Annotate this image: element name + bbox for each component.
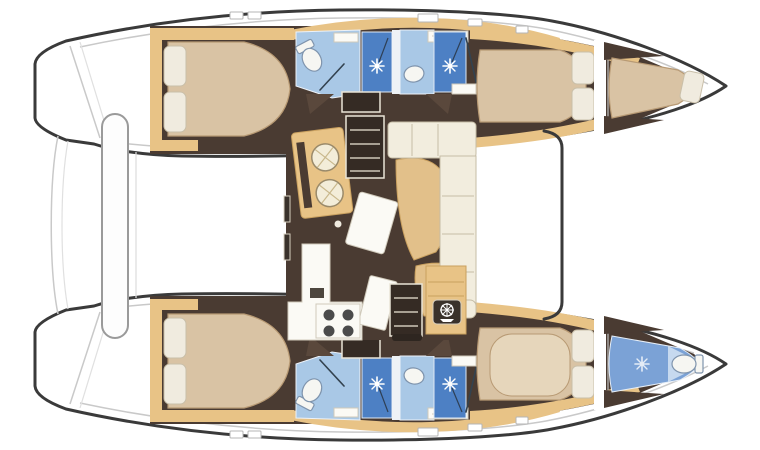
pillow [164, 318, 186, 358]
vanity-counter [452, 84, 476, 94]
starboard-forward-cabin [477, 328, 594, 400]
shower-spray-icon [443, 59, 457, 73]
deck-hatch [230, 431, 243, 438]
deck-hatch [248, 12, 261, 19]
stair-handrail [392, 334, 422, 341]
helm-wheel-icon [440, 303, 454, 322]
aft-cabin-window-band [198, 140, 288, 151]
pillow [164, 92, 186, 132]
deck-hatch [230, 12, 243, 19]
aft-cabin-trim-top [162, 28, 294, 40]
sliding-door-handle [284, 234, 290, 260]
port-forward-head [400, 30, 477, 94]
shower-spray-icon [443, 377, 457, 391]
companionway-landing [342, 338, 380, 358]
deck-hatch [468, 19, 482, 26]
bed [477, 50, 586, 122]
sliding-door-handle [284, 196, 290, 222]
shower-spray-icon [370, 59, 384, 73]
vanity-counter [334, 408, 358, 417]
deck-hatch [418, 428, 438, 436]
stairs-icon [346, 116, 384, 178]
aft-cabin-window-band [198, 299, 288, 310]
pillow [572, 366, 594, 398]
vanity-counter [452, 356, 476, 366]
catamaran-floorplan [0, 0, 760, 450]
shower-spray-icon [370, 377, 384, 391]
port-forward-cabin [477, 50, 594, 122]
shower-spray-icon [635, 357, 649, 371]
aft-cabin-trim-inboard [150, 299, 198, 310]
port-aft-cabin [164, 42, 290, 136]
deck-hatch [516, 26, 528, 33]
aft-cabin-trim-inboard [150, 140, 198, 151]
starboard-aft-cabin [164, 314, 290, 408]
table-leg [335, 221, 342, 228]
deck-hatch [516, 417, 528, 424]
aft-cabin-trim-left [150, 300, 162, 422]
four-burner-stove [316, 304, 360, 338]
starboard-forward-head [400, 356, 477, 420]
starboard-companionway-steps [390, 284, 422, 341]
stairs-icon [390, 284, 422, 336]
aft-cabin-trim-bottom [162, 410, 294, 422]
aft-cabin-trim-left [150, 28, 162, 150]
companionway-landing [342, 92, 380, 112]
stove-top [316, 304, 360, 338]
stove-burner-icon [343, 326, 354, 337]
pillow [164, 46, 186, 86]
toilet-icon [672, 355, 703, 373]
port-aft-head [295, 30, 392, 98]
starboard-aft-head [295, 352, 392, 420]
deck-hatch [248, 431, 261, 438]
deck-hatch [418, 14, 438, 22]
bed-cushion [490, 334, 570, 396]
pillow [164, 364, 186, 404]
stove-burner-icon [324, 326, 335, 337]
pillow [572, 52, 594, 84]
deck-hatch [468, 424, 482, 431]
pillow [572, 88, 594, 120]
port-companionway-steps [346, 116, 384, 178]
stove-burner-icon [324, 310, 335, 321]
counter-sink [310, 288, 324, 298]
head-divider-wall [392, 30, 400, 94]
aft-cockpit-bench [102, 114, 128, 338]
floorplan-canvas [0, 0, 760, 450]
settee-cushion [388, 122, 476, 158]
stove-burner-icon [343, 310, 354, 321]
vanity-counter [334, 33, 358, 42]
nav-cabinet [426, 266, 466, 334]
head-divider-wall [392, 356, 400, 420]
galley-sink-unit [291, 127, 353, 219]
bridgedeck-saloon [284, 116, 476, 341]
pillow [572, 330, 594, 362]
